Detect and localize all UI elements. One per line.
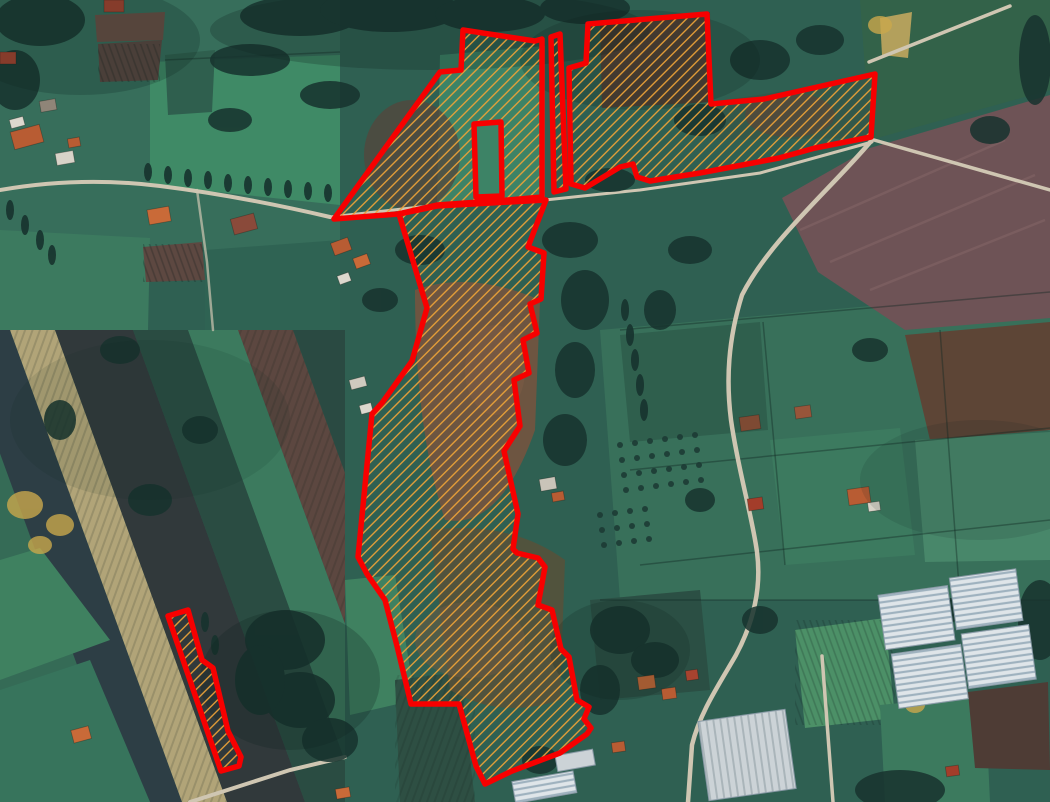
warehouse-south [698, 709, 796, 800]
satellite-map-view[interactable] [0, 0, 1050, 802]
satellite-map [0, 0, 1050, 802]
